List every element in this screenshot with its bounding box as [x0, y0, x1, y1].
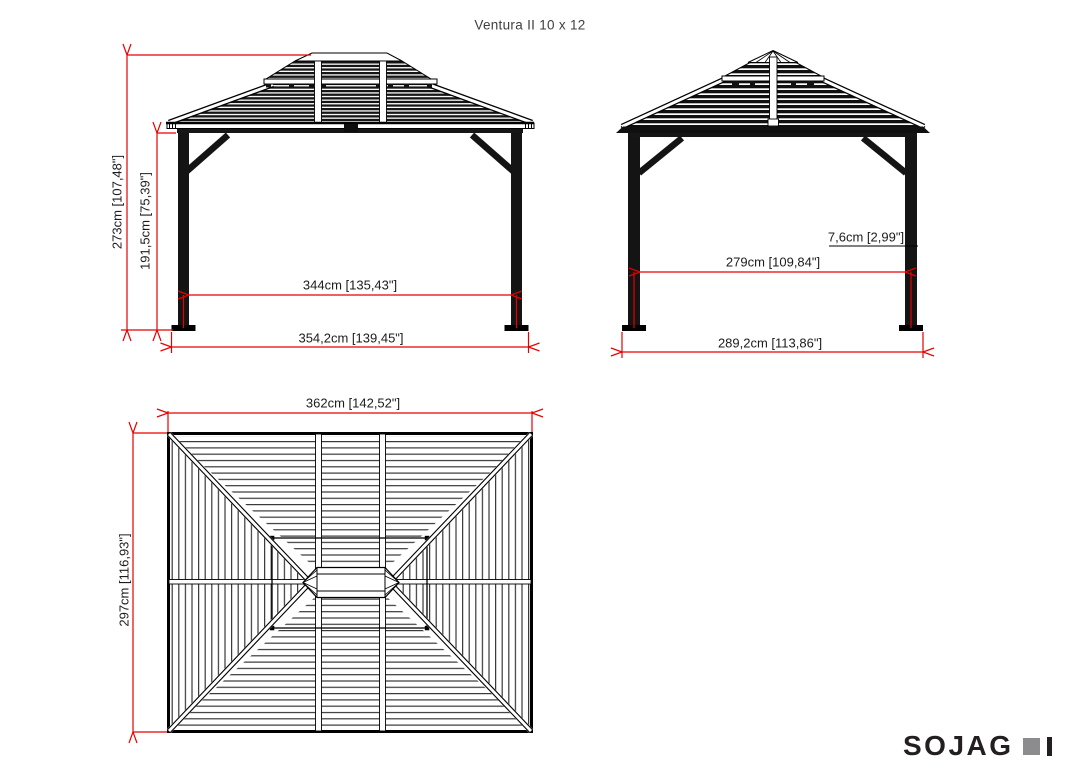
dim-label-post-width: 7,6cm [2,99"] [828, 230, 904, 245]
brand-square-icon [1023, 738, 1040, 755]
front-upper-roof-tier [264, 53, 437, 88]
dim-label-inner-depth: 279cm [109,84"] [726, 255, 820, 270]
front-eave-and-beam [166, 123, 534, 133]
front-roof-cap [295, 53, 402, 61]
dim-label-overall-height: 273cm [107,48"] [110, 155, 125, 249]
front-posts [172, 133, 529, 331]
side-elevation-drawing [595, 38, 945, 370]
page-title: Ventura II 10 x 12 [474, 18, 585, 33]
front-main-roof [168, 84, 533, 123]
dim-label-roof-depth: 297cm [116,93"] [117, 533, 132, 626]
dim-label-outer-depth: 289,2cm [113,86"] [718, 336, 822, 351]
side-eave-and-beam [616, 127, 930, 138]
roof-plan-center-vent [303, 568, 399, 598]
roof-plan-drawing [108, 385, 558, 745]
dim-label-inner-width: 344cm [135,43"] [303, 278, 397, 293]
brand-logo: SOJAG [903, 732, 1052, 760]
front-elevation-drawing [100, 40, 560, 370]
brand-bar-icon [1047, 737, 1052, 756]
dim-label-post-height: 191,5cm [75,39"] [138, 172, 153, 270]
side-center-post [768, 57, 779, 127]
dim-label-outer-width: 354,2cm [139,45"] [298, 331, 403, 346]
brand-name: SOJAG [903, 732, 1014, 760]
dim-label-roof-width: 362cm [142,52"] [306, 396, 400, 411]
